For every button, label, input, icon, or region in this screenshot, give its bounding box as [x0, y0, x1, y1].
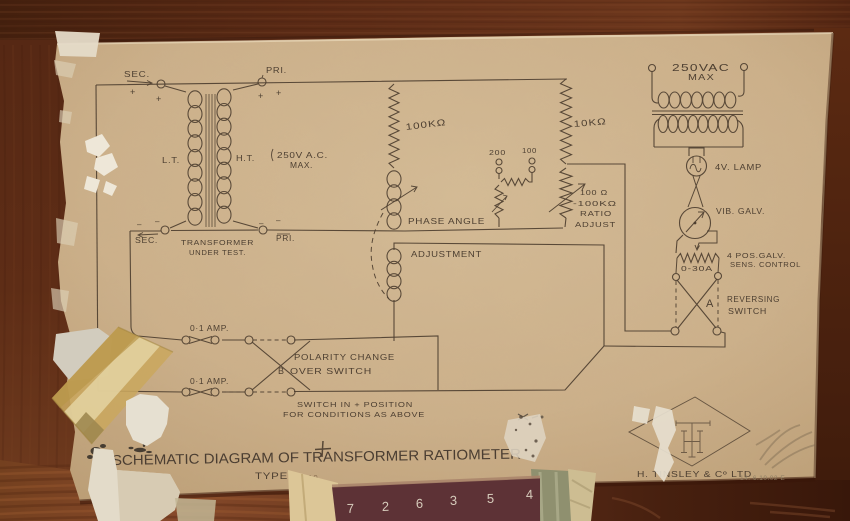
svg-text:ADJUST: ADJUST [575, 220, 616, 229]
svg-text:SWITCH: SWITCH [728, 307, 767, 316]
svg-text:–: – [155, 217, 160, 226]
svg-text:PRI.: PRI. [266, 66, 287, 75]
svg-text:0·1 AMP.: 0·1 AMP. [190, 377, 229, 386]
svg-text:2: 2 [382, 499, 390, 514]
svg-text:4: 4 [526, 487, 534, 502]
svg-text:PRI.: PRI. [276, 234, 295, 243]
svg-text:+: + [156, 94, 162, 104]
svg-text:A: A [706, 298, 714, 310]
svg-text:VIB. GALV.: VIB. GALV. [716, 207, 765, 216]
svg-text:MAX.: MAX. [290, 160, 313, 170]
svg-text:SWITCH IN + POSITION: SWITCH IN + POSITION [297, 400, 413, 409]
svg-text:0-30A: 0-30A [681, 266, 713, 273]
svg-text:–: – [276, 216, 281, 225]
svg-text:250V A.C.: 250V A.C. [277, 150, 328, 160]
svg-text:TRANSFORMER: TRANSFORMER [181, 238, 254, 247]
svg-text:RATIO: RATIO [580, 209, 612, 218]
svg-text:SENS. CONTROL: SENS. CONTROL [730, 260, 801, 269]
svg-text:14. 6.10.02 E: 14. 6.10.02 E [740, 475, 785, 482]
svg-text:-100KΩ: -100KΩ [573, 199, 617, 208]
svg-text:0·1 AMP.: 0·1 AMP. [190, 324, 229, 333]
svg-text:MAX: MAX [688, 72, 715, 82]
svg-text:SEC.: SEC. [135, 236, 158, 245]
svg-text:–: – [259, 219, 264, 228]
svg-text:FOR CONDITIONS AS ABOVE: FOR CONDITIONS AS ABOVE [283, 410, 425, 419]
svg-text:B: B [278, 366, 285, 376]
svg-text:+: + [130, 87, 136, 97]
svg-text:POLARITY CHANGE: POLARITY CHANGE [294, 353, 395, 362]
svg-text:PHASE ANGLE: PHASE ANGLE [408, 217, 485, 226]
svg-text:4V. LAMP: 4V. LAMP [715, 163, 762, 172]
svg-text:OVER SWITCH: OVER SWITCH [290, 367, 372, 376]
svg-text:3: 3 [450, 493, 458, 508]
svg-text:6: 6 [416, 496, 424, 511]
svg-text:–: – [137, 220, 142, 229]
svg-text:+: + [258, 91, 264, 101]
svg-text:L.T.: L.T. [162, 155, 180, 165]
svg-text:ADJUSTMENT: ADJUSTMENT [411, 250, 482, 259]
svg-text:+: + [276, 88, 282, 98]
svg-text:H. TINSLEY & Cº LTD: H. TINSLEY & Cº LTD [637, 470, 752, 479]
svg-text:REVERSING: REVERSING [727, 295, 780, 304]
svg-text:H.T.: H.T. [236, 153, 255, 163]
svg-text:4 POS.GALV.: 4 POS.GALV. [727, 251, 786, 260]
svg-text:7: 7 [347, 501, 355, 516]
svg-text:SEC.: SEC. [124, 70, 150, 79]
svg-text:TYPE: TYPE [255, 471, 288, 481]
svg-text:100: 100 [522, 148, 537, 155]
svg-text:UNDER TEST.: UNDER TEST. [189, 248, 246, 257]
svg-text:5: 5 [487, 491, 495, 506]
svg-text:200: 200 [489, 150, 506, 157]
svg-text:100 Ω: 100 Ω [580, 188, 608, 197]
